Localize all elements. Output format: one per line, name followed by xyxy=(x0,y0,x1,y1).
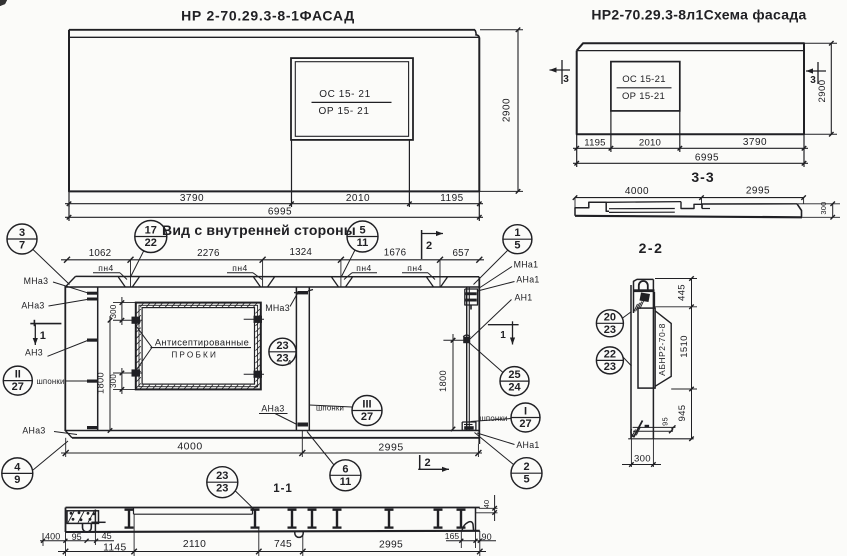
svg-text:27: 27 xyxy=(12,381,24,393)
svg-text:АНа1: АНа1 xyxy=(516,440,539,450)
svg-text:2995: 2995 xyxy=(746,186,770,197)
svg-text:МНа1: МНа1 xyxy=(514,260,539,270)
svg-text:3-3: 3-3 xyxy=(691,169,714,185)
svg-text:6: 6 xyxy=(342,463,348,475)
svg-text:95: 95 xyxy=(72,532,82,542)
svg-text:2276: 2276 xyxy=(197,248,220,259)
svg-text:165: 165 xyxy=(445,531,460,541)
svg-text:пн4: пн4 xyxy=(98,263,114,273)
svg-text:3: 3 xyxy=(810,75,816,86)
svg-text:17: 17 xyxy=(145,225,157,237)
svg-text:445: 445 xyxy=(677,284,688,301)
svg-text:2995: 2995 xyxy=(378,442,403,454)
svg-text:2: 2 xyxy=(523,461,529,473)
svg-text:АН1: АН1 xyxy=(514,293,532,303)
svg-text:5: 5 xyxy=(523,474,529,486)
svg-text:23: 23 xyxy=(604,361,616,373)
svg-text:400: 400 xyxy=(45,531,60,541)
svg-text:АБНР2-70-8: АБНР2-70-8 xyxy=(657,323,667,376)
svg-text:9: 9 xyxy=(14,474,20,486)
svg-text:5: 5 xyxy=(514,240,520,252)
svg-text:1324: 1324 xyxy=(289,247,312,258)
svg-text:40: 40 xyxy=(482,500,491,509)
svg-text:3: 3 xyxy=(563,74,569,85)
svg-text:2110: 2110 xyxy=(183,539,206,550)
svg-text:АНа3: АНа3 xyxy=(22,426,45,436)
svg-text:4000: 4000 xyxy=(625,186,649,197)
svg-text:шпонки: шпонки xyxy=(316,403,344,412)
svg-text:20: 20 xyxy=(604,311,616,323)
svg-text:6995: 6995 xyxy=(268,207,292,218)
svg-text:27: 27 xyxy=(519,418,531,430)
svg-text:АНа1: АНа1 xyxy=(516,275,539,285)
svg-text:пн4: пн4 xyxy=(356,263,372,273)
svg-text:НР2-70.29.3-8л1Схема фасада: НР2-70.29.3-8л1Схема фасада xyxy=(591,7,806,23)
svg-text:1145: 1145 xyxy=(103,543,126,554)
svg-text:ОС 15-21: ОС 15-21 xyxy=(622,74,666,85)
svg-text:1800: 1800 xyxy=(438,370,448,392)
svg-text:745: 745 xyxy=(274,539,292,550)
svg-text:шпонки: шпонки xyxy=(479,414,507,423)
svg-text:22: 22 xyxy=(604,348,616,360)
svg-text:НР 2-70.29.3-8-1ФАСАД: НР 2-70.29.3-8-1ФАСАД xyxy=(181,8,355,24)
svg-text:АН3: АН3 xyxy=(25,348,43,358)
svg-text:300: 300 xyxy=(634,454,651,465)
svg-text:1800: 1800 xyxy=(96,372,106,394)
svg-text:1195: 1195 xyxy=(584,137,605,148)
svg-text:III: III xyxy=(362,399,371,411)
svg-text:Вид с внутренней стороны: Вид с внутренней стороны xyxy=(162,222,356,238)
svg-text:пн4: пн4 xyxy=(407,263,423,273)
svg-text:4: 4 xyxy=(14,461,21,473)
svg-text:МНа3: МНа3 xyxy=(24,276,49,286)
svg-text:90: 90 xyxy=(481,532,491,542)
svg-text:25: 25 xyxy=(508,369,520,381)
svg-text:7: 7 xyxy=(19,240,25,252)
svg-text:АНа3: АНа3 xyxy=(21,301,44,311)
svg-text:2995: 2995 xyxy=(379,540,403,551)
svg-text:ОР 15- 21: ОР 15- 21 xyxy=(319,106,370,117)
svg-text:3: 3 xyxy=(19,227,25,239)
svg-text:II: II xyxy=(15,369,21,381)
svg-text:2900: 2900 xyxy=(817,80,828,103)
svg-text:95: 95 xyxy=(660,417,669,426)
svg-text:2: 2 xyxy=(426,240,432,252)
svg-text:1: 1 xyxy=(500,330,506,341)
svg-text:пн4: пн4 xyxy=(232,263,248,273)
svg-text:2900: 2900 xyxy=(502,98,513,122)
svg-text:6995: 6995 xyxy=(695,152,719,163)
svg-text:Антисептированные: Антисептированные xyxy=(155,337,249,347)
svg-text:5: 5 xyxy=(359,225,365,237)
svg-text:22: 22 xyxy=(145,237,157,249)
svg-text:11: 11 xyxy=(340,476,352,488)
svg-text:23: 23 xyxy=(276,340,288,352)
svg-text:300: 300 xyxy=(819,201,828,214)
svg-text:1510: 1510 xyxy=(679,335,690,358)
svg-text:ОС 15- 21: ОС 15- 21 xyxy=(319,89,371,100)
svg-text:2010: 2010 xyxy=(346,193,370,204)
svg-text:МНа3: МНа3 xyxy=(265,303,290,313)
svg-text:2010: 2010 xyxy=(639,137,661,148)
svg-text:657: 657 xyxy=(453,248,470,259)
svg-text:945: 945 xyxy=(677,405,688,422)
svg-text:I: I xyxy=(524,406,527,418)
svg-text:ПРОБКИ: ПРОБКИ xyxy=(171,351,218,360)
svg-text:1: 1 xyxy=(40,330,46,342)
svg-text:1195: 1195 xyxy=(440,193,464,204)
svg-text:23: 23 xyxy=(216,470,228,482)
svg-text:АНа3: АНа3 xyxy=(261,404,284,414)
svg-text:27: 27 xyxy=(361,411,373,423)
svg-text:1: 1 xyxy=(514,227,520,239)
svg-text:45: 45 xyxy=(102,531,112,541)
svg-text:1-1: 1-1 xyxy=(273,483,293,495)
svg-text:23: 23 xyxy=(604,324,616,336)
svg-text:2: 2 xyxy=(424,457,430,469)
svg-text:ОР 15-21: ОР 15-21 xyxy=(622,91,665,102)
svg-text:23: 23 xyxy=(216,483,228,495)
svg-text:24: 24 xyxy=(508,382,521,394)
svg-text:3790: 3790 xyxy=(743,137,767,148)
svg-text:шпонки: шпонки xyxy=(36,377,64,386)
svg-text:2-2: 2-2 xyxy=(639,240,664,256)
svg-text:11: 11 xyxy=(357,237,369,249)
svg-text:1062: 1062 xyxy=(89,248,112,259)
svg-text:4000: 4000 xyxy=(177,441,202,453)
svg-text:3790: 3790 xyxy=(180,193,204,204)
svg-text:1676: 1676 xyxy=(384,248,407,259)
